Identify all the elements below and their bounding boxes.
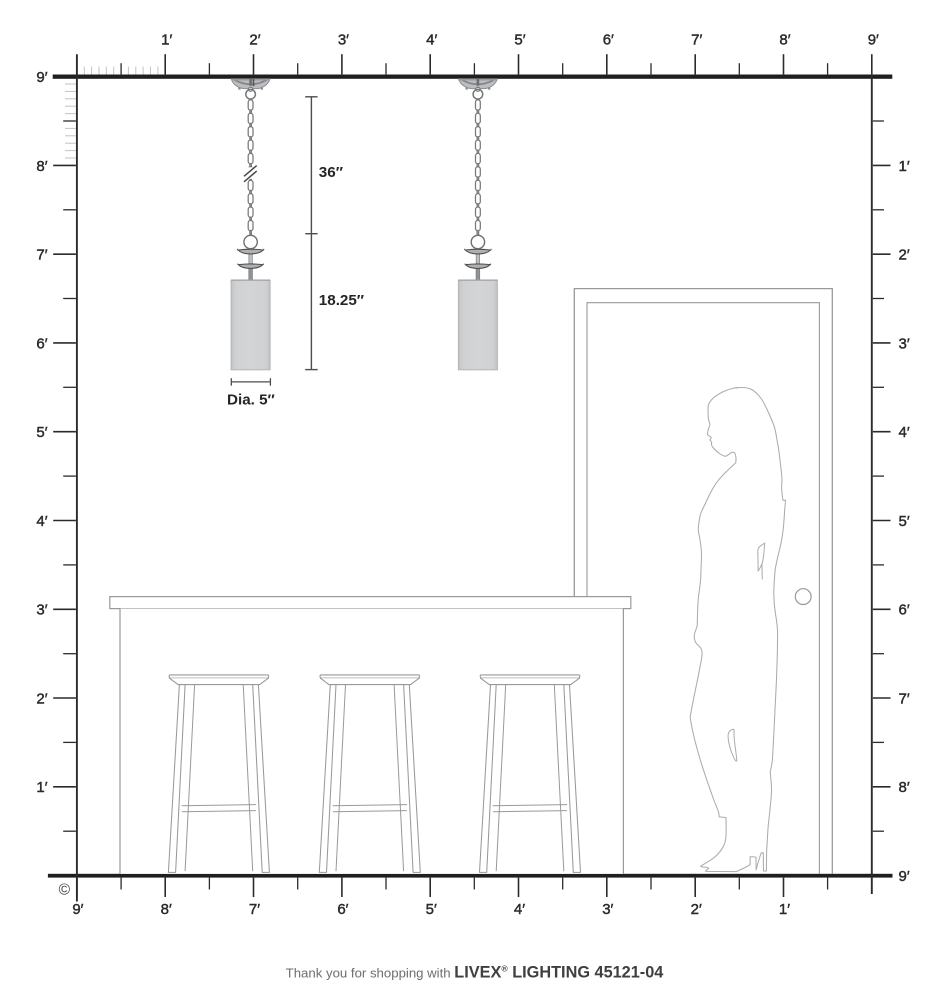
svg-text:5′: 5′ <box>899 513 910 530</box>
svg-text:8′: 8′ <box>779 32 790 49</box>
svg-text:3′: 3′ <box>338 32 349 49</box>
svg-text:3′: 3′ <box>602 901 613 918</box>
svg-text:7′: 7′ <box>36 247 47 264</box>
svg-text:6′: 6′ <box>603 32 614 49</box>
svg-text:3′: 3′ <box>36 602 47 619</box>
svg-text:7′: 7′ <box>691 32 702 49</box>
svg-text:36″: 36″ <box>319 164 343 181</box>
svg-text:1′: 1′ <box>899 158 910 175</box>
svg-text:2′: 2′ <box>36 690 47 707</box>
svg-text:Thank you for shopping with LI: Thank you for shopping with LIVEX® LIGHT… <box>286 963 664 981</box>
svg-text:8′: 8′ <box>899 779 910 796</box>
svg-text:9′: 9′ <box>868 32 879 49</box>
svg-text:4′: 4′ <box>514 901 525 918</box>
svg-text:Dia. 5″: Dia. 5″ <box>227 392 275 409</box>
svg-text:4′: 4′ <box>426 32 437 49</box>
svg-text:2′: 2′ <box>899 247 910 264</box>
svg-text:4′: 4′ <box>36 513 47 530</box>
svg-text:1′: 1′ <box>161 32 172 49</box>
svg-text:6′: 6′ <box>36 335 47 352</box>
svg-text:2′: 2′ <box>691 901 702 918</box>
svg-text:5′: 5′ <box>514 32 525 49</box>
svg-text:2′: 2′ <box>249 32 260 49</box>
svg-text:5′: 5′ <box>426 901 437 918</box>
svg-text:5′: 5′ <box>36 424 47 441</box>
svg-text:7′: 7′ <box>899 690 910 707</box>
svg-text:9′: 9′ <box>36 69 47 86</box>
svg-text:8′: 8′ <box>36 158 47 175</box>
svg-text:6′: 6′ <box>899 602 910 619</box>
svg-text:©: © <box>59 882 71 899</box>
svg-text:7′: 7′ <box>249 901 260 918</box>
svg-text:18.25″: 18.25″ <box>319 292 364 309</box>
svg-text:3′: 3′ <box>899 335 910 352</box>
svg-text:4′: 4′ <box>899 424 910 441</box>
svg-text:8′: 8′ <box>161 901 172 918</box>
svg-text:9′: 9′ <box>899 868 910 885</box>
svg-text:9′: 9′ <box>72 901 83 918</box>
svg-text:1′: 1′ <box>36 779 47 796</box>
svg-text:6′: 6′ <box>337 901 348 918</box>
svg-text:1′: 1′ <box>779 901 790 918</box>
